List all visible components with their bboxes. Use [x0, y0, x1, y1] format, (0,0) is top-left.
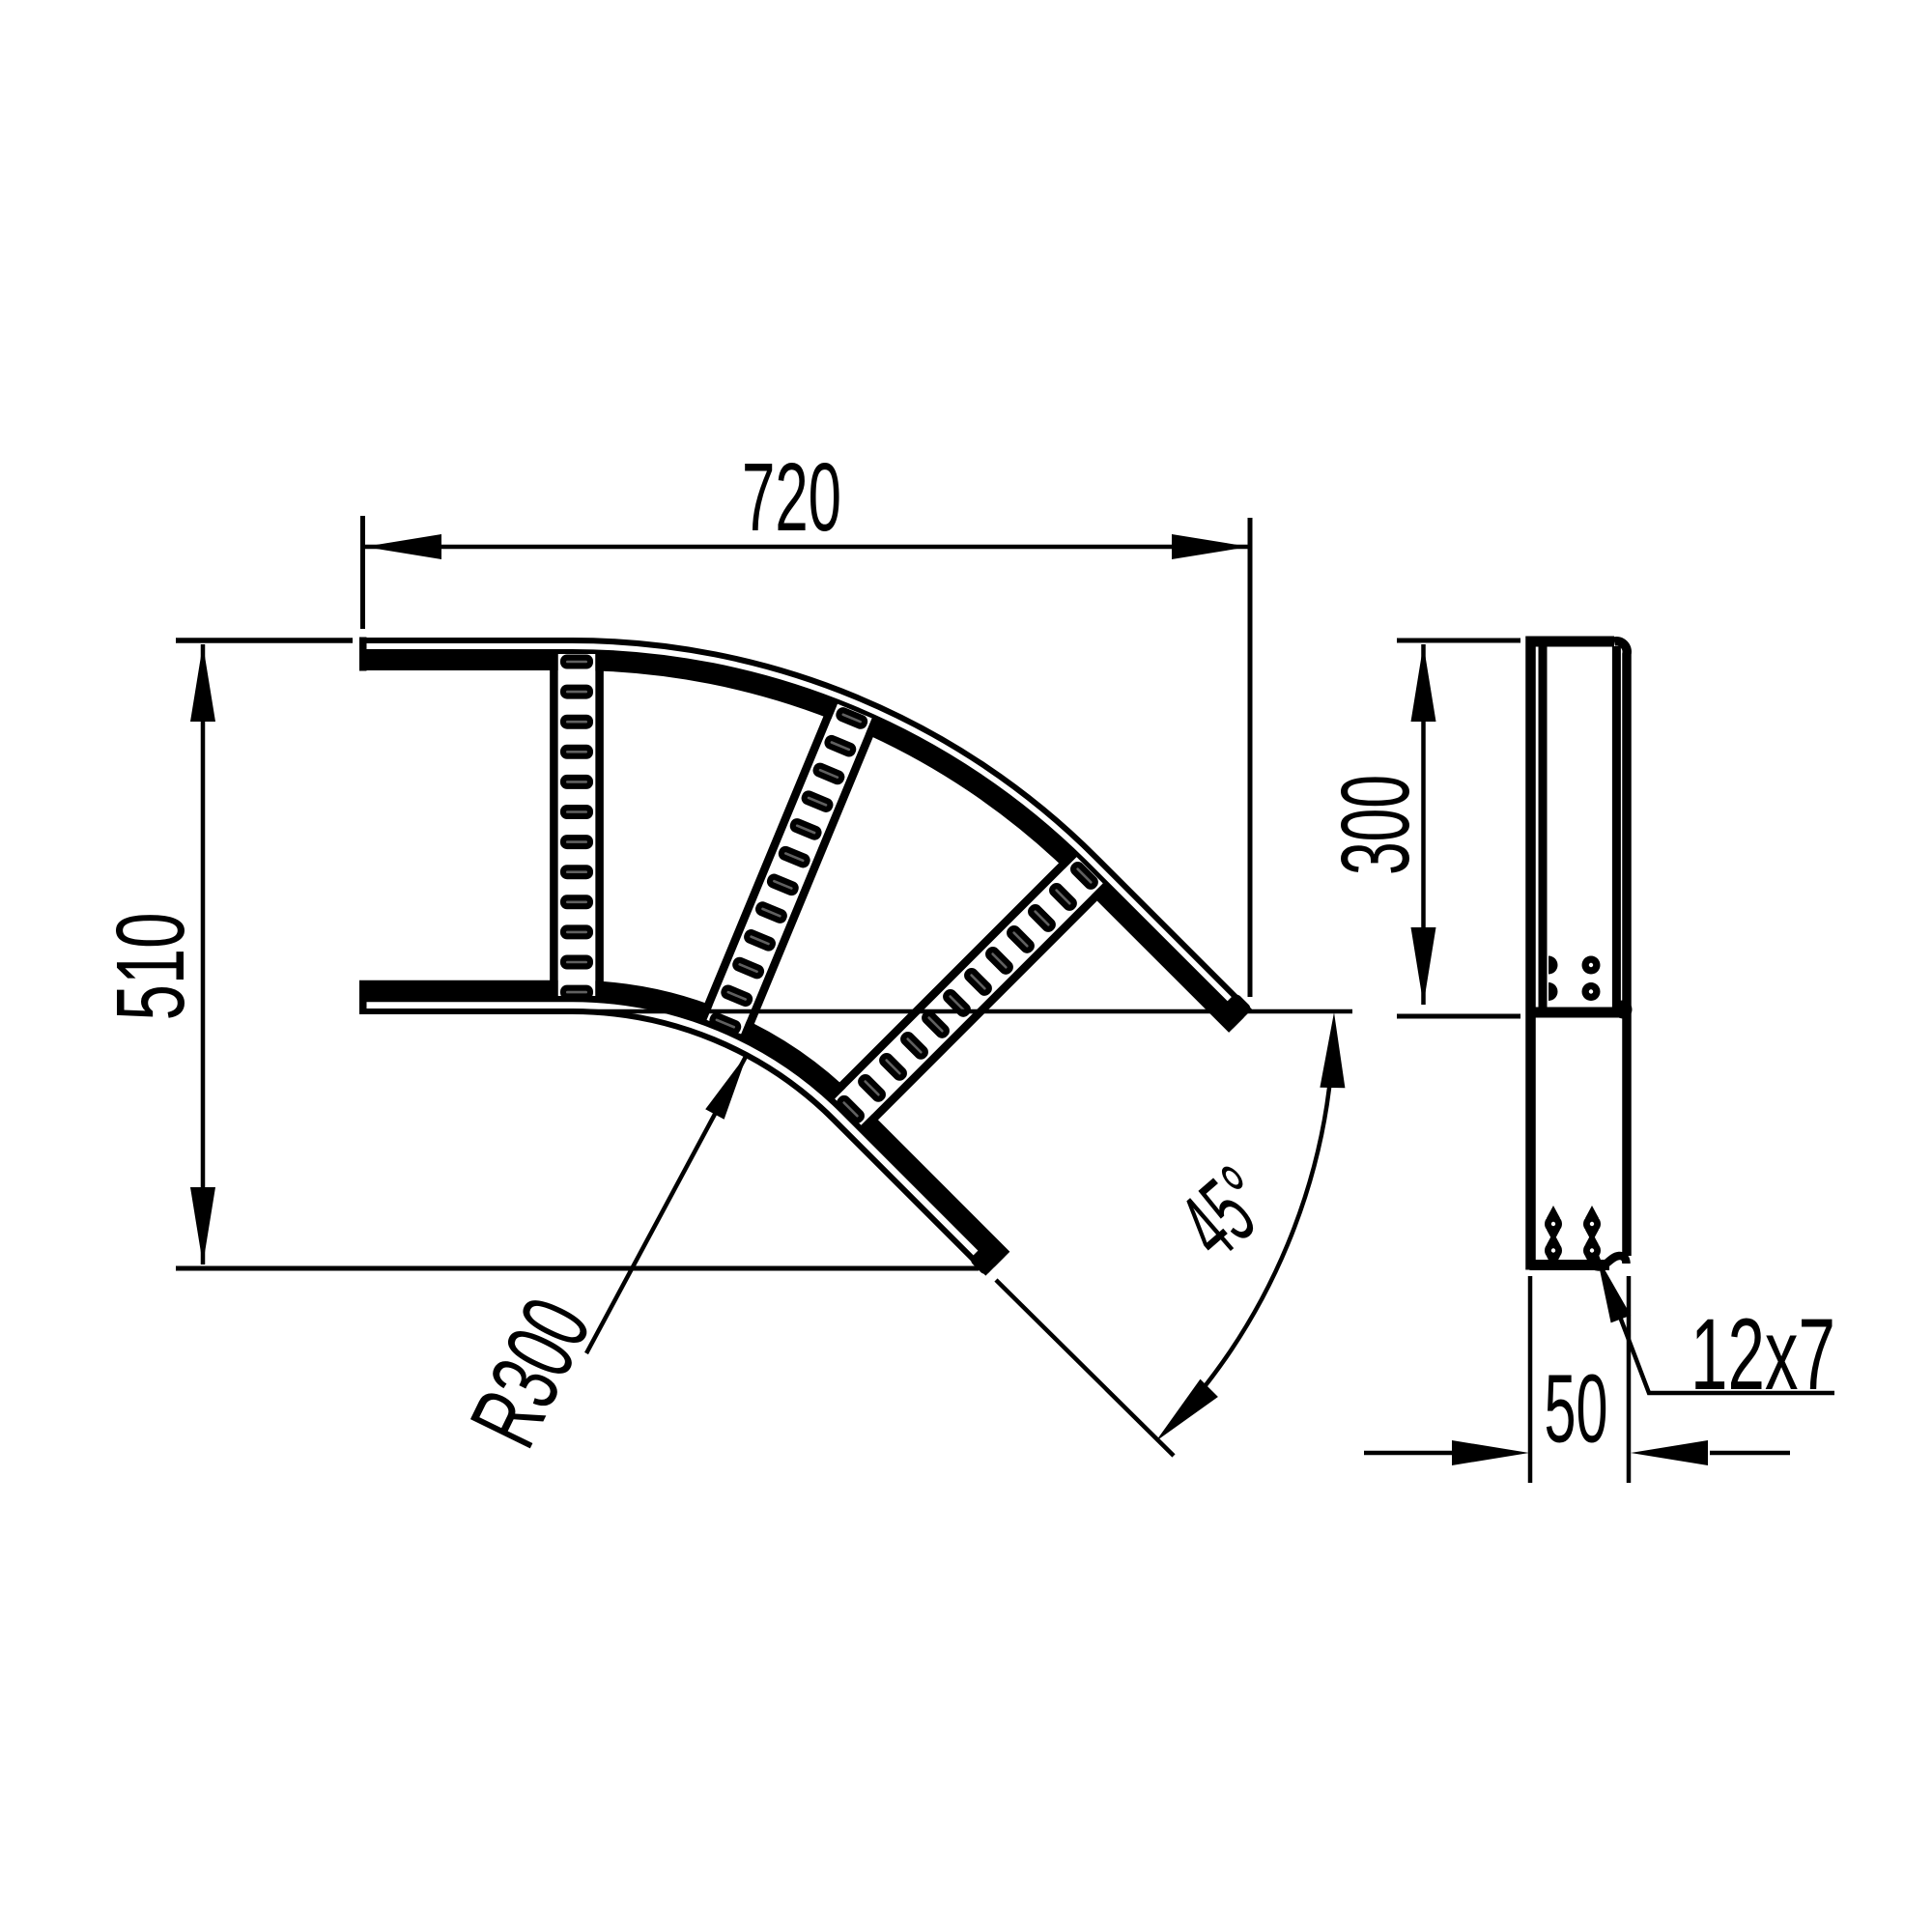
svg-text:510: 510 — [97, 913, 205, 1021]
svg-text:12x7: 12x7 — [1690, 1298, 1835, 1411]
svg-text:720: 720 — [742, 443, 841, 552]
svg-text:300: 300 — [1321, 775, 1430, 875]
svg-text:50: 50 — [1545, 1355, 1608, 1463]
